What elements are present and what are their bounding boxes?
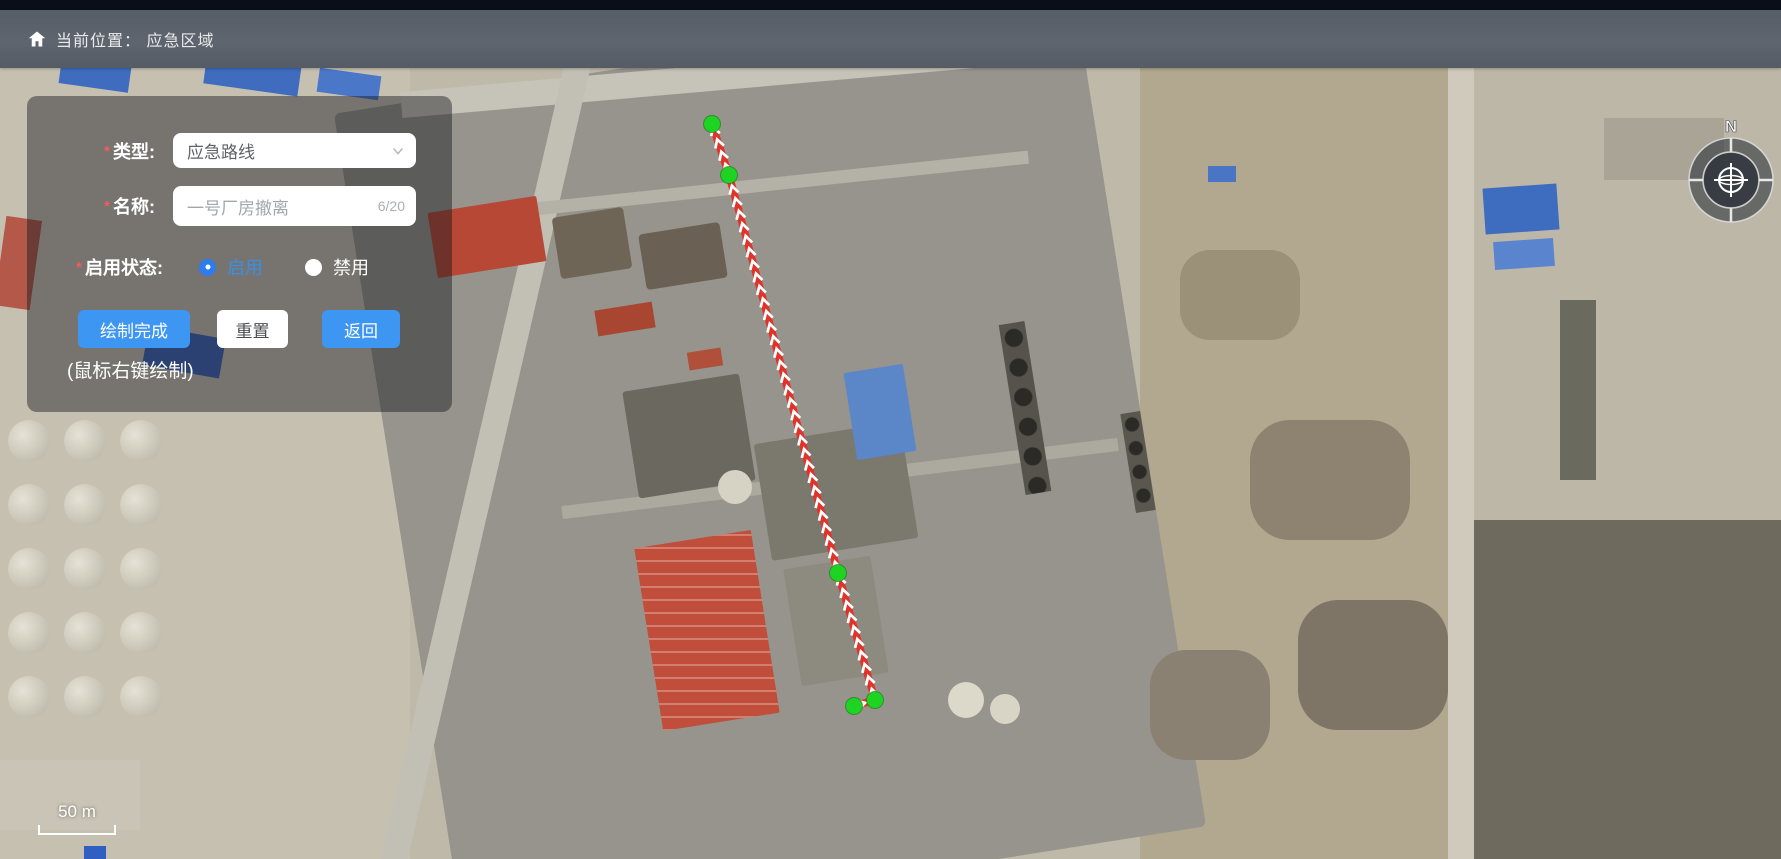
- radio-unselected-icon: [305, 259, 322, 276]
- map-terrain-feature: [120, 420, 162, 462]
- radio-selected-icon: [199, 259, 216, 276]
- map-terrain-feature: [334, 0, 1206, 859]
- compass-north-icon: N: [1725, 117, 1737, 136]
- breadcrumb: 当前位置： 应急区域: [56, 27, 214, 51]
- map-terrain-feature: [64, 420, 106, 462]
- required-asterisk-icon: *: [76, 259, 82, 276]
- type-row: *类型: 应急路线: [27, 133, 452, 168]
- radio-enabled[interactable]: 启用: [199, 254, 263, 280]
- map-terrain-feature: [120, 484, 162, 526]
- radio-disabled[interactable]: 禁用: [305, 254, 369, 280]
- map-terrain-feature: [1493, 238, 1555, 270]
- status-radio-group: 启用 禁用: [199, 254, 369, 280]
- map-terrain-feature: [84, 846, 106, 859]
- char-counter: 6/20: [378, 198, 405, 214]
- route-form-panel: *类型: 应急路线 *名称: 6/20 *启用状态:: [27, 96, 452, 412]
- map-terrain-feature: [64, 612, 106, 654]
- map-terrain-feature: [64, 676, 106, 718]
- map-terrain-feature: [64, 548, 106, 590]
- type-label: *类型:: [27, 138, 155, 164]
- required-asterisk-icon: *: [104, 198, 110, 215]
- map-terrain-feature: [783, 556, 888, 686]
- map-terrain-feature: [1180, 250, 1300, 340]
- status-label: *启用状态:: [27, 254, 163, 280]
- finish-draw-button[interactable]: 绘制完成: [78, 310, 190, 348]
- map-terrain-feature: [1150, 650, 1270, 760]
- map-terrain-feature: [1560, 300, 1596, 480]
- home-icon[interactable]: [28, 30, 46, 48]
- draw-hint: (鼠标右键绘制): [67, 356, 194, 383]
- map-terrain-feature: [120, 676, 162, 718]
- back-button[interactable]: 返回: [322, 310, 400, 348]
- map-terrain-feature: [1208, 166, 1236, 182]
- scale-label: 50 m: [38, 802, 116, 822]
- map-terrain-feature: [8, 484, 50, 526]
- reset-button[interactable]: 重置: [217, 310, 288, 348]
- compass[interactable]: N: [1685, 108, 1777, 226]
- map-terrain-feature: [120, 548, 162, 590]
- status-row: *启用状态: 启用 禁用: [27, 254, 452, 280]
- map-terrain-feature: [1298, 600, 1448, 730]
- name-row: *名称: 6/20: [27, 186, 452, 226]
- map-scale-bar: 50 m: [38, 802, 116, 841]
- app-screen: N 50 m 当前位置： 应急区域 *类型:: [0, 0, 1781, 859]
- window-top-strip: [0, 0, 1781, 10]
- radio-disabled-label: 禁用: [333, 254, 369, 280]
- map-terrain-feature: [8, 548, 50, 590]
- map-terrain-feature: [1448, 68, 1474, 859]
- breadcrumb-bar: 当前位置： 应急区域: [0, 10, 1781, 68]
- required-asterisk-icon: *: [104, 143, 110, 160]
- map-terrain-feature: [1482, 183, 1559, 234]
- map-terrain-feature: [1250, 420, 1410, 540]
- map-terrain-feature: [552, 207, 633, 279]
- map-terrain-feature: [1455, 520, 1781, 859]
- radio-enabled-label: 启用: [227, 254, 263, 280]
- map-terrain-feature: [990, 694, 1020, 724]
- map-terrain-feature: [948, 682, 984, 718]
- map-terrain-feature: [120, 612, 162, 654]
- name-label: *名称:: [27, 193, 155, 219]
- scale-ruler-icon: [38, 824, 116, 836]
- map-terrain-feature: [8, 612, 50, 654]
- map-terrain-feature: [718, 470, 752, 504]
- map-terrain-feature: [64, 484, 106, 526]
- map-terrain-feature: [8, 420, 50, 462]
- type-select-value: 应急路线: [187, 138, 392, 163]
- map-terrain-feature: [8, 676, 50, 718]
- type-select[interactable]: 应急路线: [173, 133, 416, 168]
- chevron-down-icon: [392, 145, 404, 157]
